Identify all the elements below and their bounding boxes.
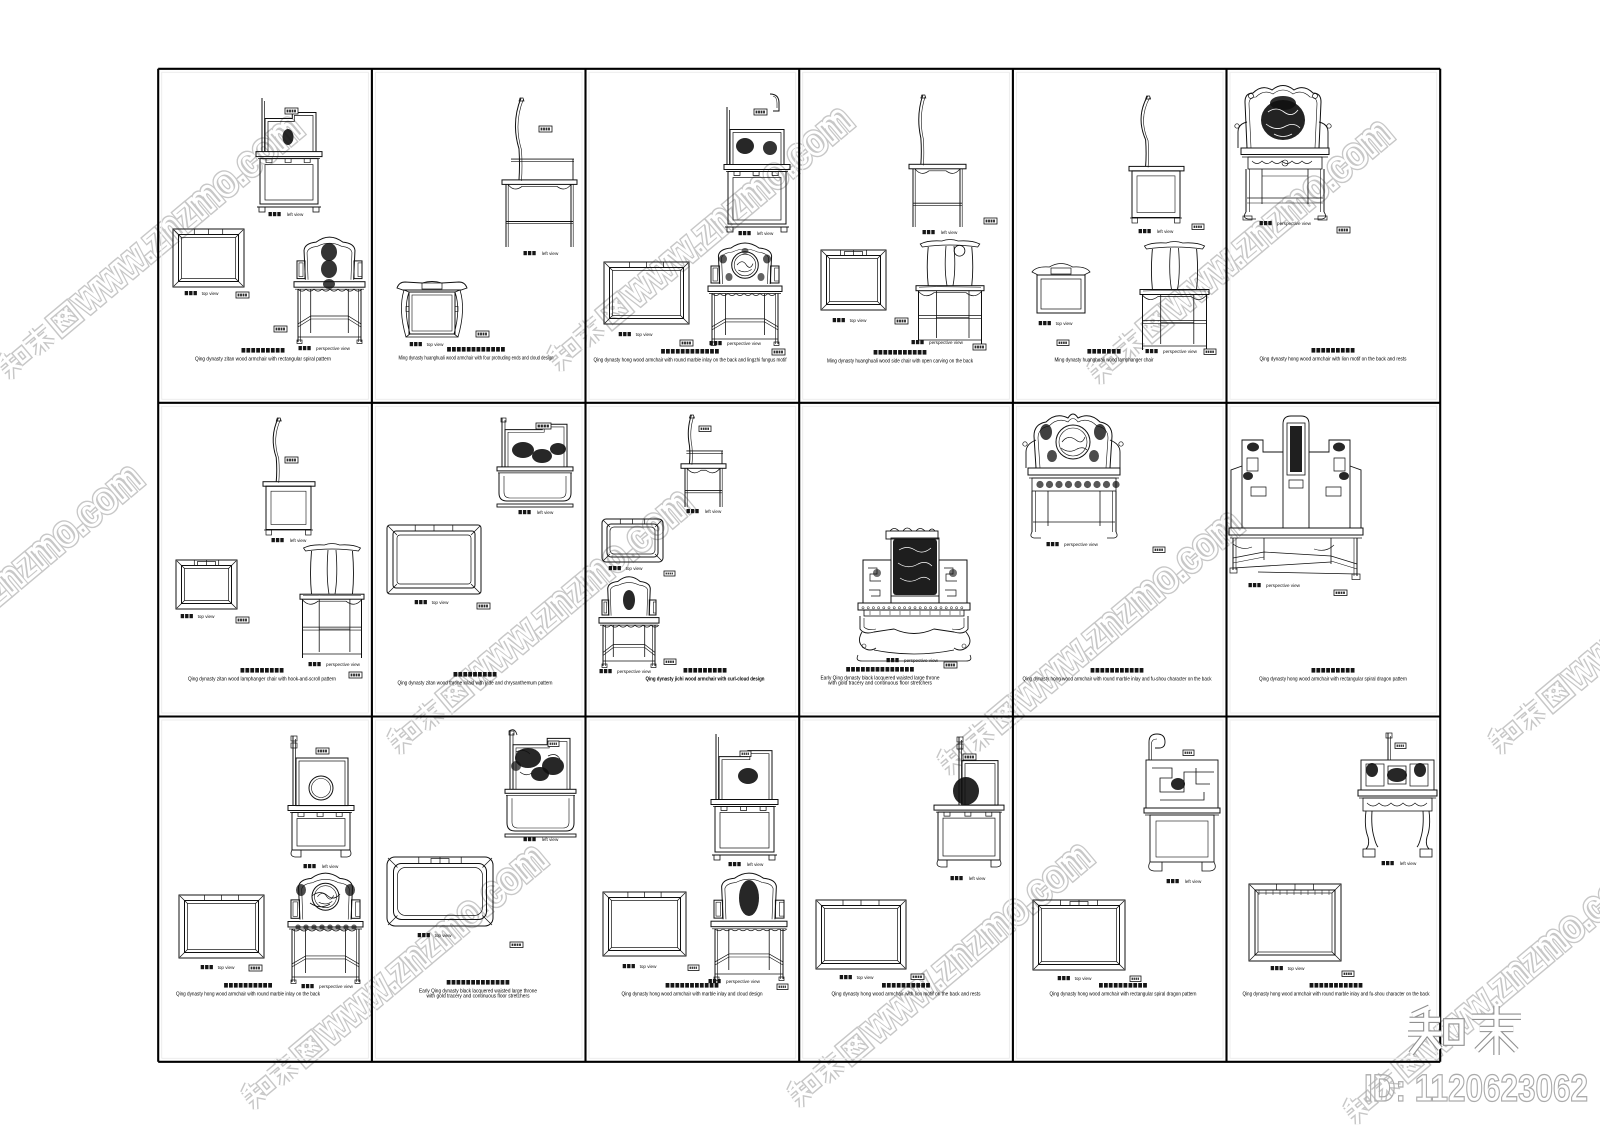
svg-text:top view: top view <box>1288 966 1306 971</box>
svg-text:perspective view: perspective view <box>1064 542 1099 547</box>
svg-text:top view: top view <box>626 566 644 571</box>
svg-text:left view: left view <box>287 212 304 217</box>
svg-text:perspective view: perspective view <box>1163 349 1198 354</box>
svg-text:left view: left view <box>537 510 554 515</box>
svg-text:top view: top view <box>198 614 216 619</box>
svg-text:Ming dynasty huanghuali wood l: Ming dynasty huanghuali wood lamphanger … <box>1055 358 1154 364</box>
svg-text:top view: top view <box>1056 321 1074 326</box>
svg-text:top view: top view <box>640 964 658 969</box>
svg-text:Qing dynasty hong wood armchai: Qing dynasty hong wood armchair with rou… <box>1243 992 1430 998</box>
svg-text:left view: left view <box>705 509 722 514</box>
svg-text:perspective view: perspective view <box>726 979 761 984</box>
svg-text:perspective view: perspective view <box>727 341 762 346</box>
svg-text:Qing dynasty hong wood armchai: Qing dynasty hong wood armchair with rou… <box>176 992 320 998</box>
svg-text:Qing dynasty zitan wood armcha: Qing dynasty zitan wood armchair with re… <box>195 357 331 363</box>
svg-text:with gold tracery and continuo: with gold tracery and continuous floor s… <box>427 993 530 999</box>
svg-text:Qing dynasty hong wood armchai: Qing dynasty hong wood armchair with rou… <box>594 358 787 364</box>
svg-text:perspective view: perspective view <box>319 984 354 989</box>
svg-text:Qing dynasty hong wood armchai: Qing dynasty hong wood armchair with rou… <box>1023 677 1212 683</box>
svg-text:Qing dynasty hong wood armchai: Qing dynasty hong wood armchair with mar… <box>622 992 763 998</box>
svg-text:left view: left view <box>969 876 986 881</box>
svg-text:Ming dynasty huanghuali wood a: Ming dynasty huanghuali wood armchair wi… <box>399 356 554 362</box>
svg-text:perspective view: perspective view <box>316 346 351 351</box>
svg-text:left view: left view <box>542 251 559 256</box>
svg-text:top view: top view <box>636 332 654 337</box>
svg-text:left view: left view <box>1400 861 1417 866</box>
svg-text:ID: 1120623062: ID: 1120623062 <box>1364 1068 1588 1110</box>
svg-text:Qing dynasty hong wood armchai: Qing dynasty hong wood armchair with rec… <box>1050 992 1197 998</box>
svg-text:top view: top view <box>1075 976 1093 981</box>
svg-text:Qing dynasty hong wood armchai: Qing dynasty hong wood armchair with lio… <box>1260 357 1407 363</box>
svg-text:perspective view: perspective view <box>904 658 939 663</box>
svg-text:Qing dynasty hong wood armchai: Qing dynasty hong wood armchair with rec… <box>1259 677 1407 683</box>
svg-text:left view: left view <box>542 837 559 842</box>
svg-text:Qing dynasty hong wood armchai: Qing dynasty hong wood armchair with lio… <box>832 992 981 998</box>
svg-text:top view: top view <box>435 933 453 938</box>
svg-text:left view: left view <box>322 864 339 869</box>
svg-text:left view: left view <box>290 538 307 543</box>
svg-text:perspective view: perspective view <box>929 340 964 345</box>
svg-text:Qing dynasty jichi wood armcha: Qing dynasty jichi wood armchair with cu… <box>646 677 765 683</box>
svg-text:top view: top view <box>427 342 445 347</box>
svg-text:top view: top view <box>432 600 450 605</box>
svg-text:left view: left view <box>1157 229 1174 234</box>
svg-text:top view: top view <box>850 318 868 323</box>
svg-text:top view: top view <box>202 291 220 296</box>
svg-text:Ming dynasty huanghuali wood s: Ming dynasty huanghuali wood side chair … <box>827 359 973 365</box>
svg-text:Qing dynasty zitan wood lampha: Qing dynasty zitan wood lamphanger chair… <box>188 677 336 683</box>
svg-text:top view: top view <box>218 965 236 970</box>
svg-text:Qing dynasty zitan wood throne: Qing dynasty zitan wood throne inlaid wi… <box>398 681 553 687</box>
svg-text:left view: left view <box>747 862 764 867</box>
svg-text:left view: left view <box>1185 879 1202 884</box>
svg-text:perspective view: perspective view <box>1266 583 1301 588</box>
svg-text:perspective view: perspective view <box>617 669 652 674</box>
svg-text:left view: left view <box>941 230 958 235</box>
svg-text:perspective view: perspective view <box>1277 221 1312 226</box>
svg-text:with gold tracery and continuo: with gold tracery and continuous floor s… <box>828 680 932 686</box>
svg-text:top view: top view <box>857 975 875 980</box>
svg-text:left view: left view <box>757 231 774 236</box>
svg-text:perspective view: perspective view <box>326 662 361 667</box>
